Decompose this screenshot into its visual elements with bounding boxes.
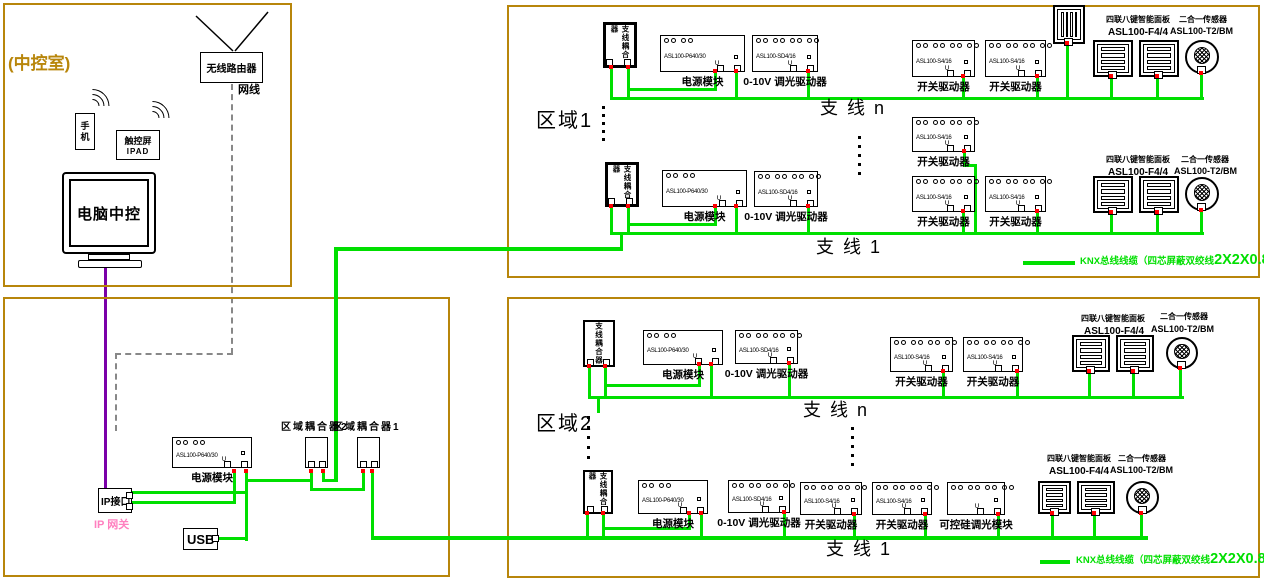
continuation-dots	[602, 130, 605, 133]
terminal-dot	[734, 69, 738, 73]
u-mark: ∪	[692, 351, 698, 360]
continuation-dots	[858, 145, 861, 148]
clamp-icon	[900, 485, 905, 490]
u-mark: ∪	[767, 350, 773, 359]
terminal-dot	[1035, 209, 1039, 213]
clamp-icon	[1008, 340, 1013, 345]
clamp-icon	[893, 485, 898, 490]
clamp-icon	[647, 333, 652, 338]
indicator	[1012, 355, 1016, 359]
clamp-icon	[957, 43, 962, 48]
clamp-icon	[773, 38, 778, 43]
indicator	[964, 195, 968, 199]
terminal-dot	[1087, 369, 1091, 373]
clamp-icon	[855, 485, 860, 490]
gw-power-module-label: 电源模块	[112, 470, 312, 485]
terminal-row	[739, 333, 807, 338]
clamp-icon	[671, 38, 676, 43]
model-text: ASL100-P640/30	[176, 453, 218, 459]
diagram-label: ASL100-T2/BM	[1151, 325, 1214, 335]
z1r1-switch-driver-2-label: 开关驱动器	[916, 79, 1116, 94]
knx-bus-wire	[218, 537, 248, 540]
clamp-icon	[968, 485, 973, 490]
continuation-dots	[851, 463, 854, 466]
clamp-icon	[935, 340, 940, 345]
diagram-label: 二合一传感器	[1118, 455, 1166, 464]
terminal-dot	[1199, 71, 1203, 75]
panel-keys	[1097, 180, 1129, 209]
terminal-dot	[321, 469, 325, 473]
terminal-dot	[232, 469, 236, 473]
indicator	[241, 451, 245, 455]
clamp-icon	[766, 483, 771, 488]
clamp-icon	[732, 483, 737, 488]
panel-key	[1066, 12, 1069, 37]
legend-text: KNX总线线缆（四芯屏蔽双绞线2X2X0.8）	[1080, 252, 1264, 268]
panel-key	[1147, 202, 1171, 206]
clamp-icon	[1023, 179, 1028, 184]
clamp-icon	[816, 174, 821, 179]
knx-bus-wire	[334, 247, 623, 251]
z1r2-switch-driver-2: ASL100-S4/16∪	[985, 176, 1046, 212]
terminal-dot	[713, 204, 717, 208]
diagram-label: ASL100-T2/BM	[1110, 466, 1173, 476]
knx-bus-wire	[1200, 209, 1203, 232]
terminal-dot	[697, 362, 701, 366]
clamp-icon	[974, 340, 979, 345]
clamp-icon	[975, 485, 980, 490]
model-text: ASL100-SD4/16	[732, 497, 771, 503]
sensor-lens-icon	[1194, 47, 1211, 64]
panel-key	[1124, 361, 1146, 365]
diagram-label: 四联八键智能面板	[1081, 315, 1145, 324]
panel-key	[1124, 342, 1146, 346]
panel-key	[1075, 12, 1078, 37]
terminal-dot	[713, 69, 717, 73]
continuation-dots	[602, 122, 605, 125]
terminal-dot	[601, 511, 605, 515]
clamp-icon	[957, 179, 962, 184]
clamp-icon	[916, 179, 921, 184]
panel-key	[1085, 499, 1107, 502]
diagram-label: 二合一传感器	[1181, 156, 1229, 165]
usb-interface-box: USB	[183, 528, 218, 550]
clamp-icon	[876, 485, 881, 490]
clamp-icon	[940, 43, 945, 48]
clamp-icon	[923, 43, 928, 48]
u-mark: ∪	[677, 500, 683, 509]
clamp-icon	[664, 38, 669, 43]
gw-power-module: ASL100-P640/30∪	[172, 437, 252, 468]
clamp-icon	[193, 440, 198, 445]
terminal-dot	[603, 364, 607, 368]
diagram-label: 支 线 n	[803, 401, 869, 421]
diagram-label: ASL100-T2/BM	[1174, 167, 1237, 177]
knx-bus-wire	[132, 491, 248, 494]
clamp-icon	[940, 120, 945, 125]
indicator	[787, 347, 791, 351]
z1r1-panel-top	[1053, 5, 1085, 44]
continuation-dots	[587, 456, 590, 459]
terminal	[126, 503, 133, 510]
clamp-icon	[654, 333, 659, 338]
clamp-icon	[782, 174, 787, 179]
clamp-icon	[950, 43, 955, 48]
clamp-icon	[1025, 340, 1030, 345]
indicator	[964, 135, 968, 139]
clamp-icon	[916, 43, 921, 48]
clamp-icon	[797, 38, 802, 43]
panel-key	[1080, 355, 1102, 359]
terminal-row	[804, 485, 872, 490]
clamp-icon	[1013, 179, 1018, 184]
clamp-icon	[814, 38, 819, 43]
clamp-icon	[773, 333, 778, 338]
clamp-icon	[797, 333, 802, 338]
panel-key	[1101, 202, 1125, 206]
clamp-icon	[1047, 179, 1052, 184]
terminal-row	[647, 333, 681, 338]
diagram-label: 支 线 1	[816, 238, 882, 258]
u-mark: ∪	[759, 499, 765, 508]
terminal-dot	[361, 469, 365, 473]
clamp-icon	[992, 485, 997, 490]
terminal	[212, 535, 219, 542]
indicator	[734, 55, 738, 59]
clamp-icon	[923, 120, 928, 125]
clamp-icon	[1030, 179, 1035, 184]
terminal-dot	[1139, 511, 1143, 515]
clamp-icon	[838, 485, 843, 490]
u-mark: ∪	[787, 193, 793, 202]
panel-key	[1147, 183, 1171, 187]
clamp-icon	[1013, 43, 1018, 48]
terminal-dot	[962, 149, 966, 153]
clamp-icon	[989, 43, 994, 48]
clamp-icon	[749, 483, 754, 488]
knx-bus-wire	[610, 97, 1204, 100]
clamp-icon	[845, 485, 850, 490]
terminal-dot	[1035, 74, 1039, 78]
panel-keys	[1120, 339, 1150, 368]
z1r2-panel-1	[1093, 176, 1133, 213]
model-text: ASL100-P640/30	[664, 54, 706, 60]
zone-coupler-2	[305, 437, 328, 468]
u-mark: ∪	[992, 358, 998, 367]
z1r2-power-module: ASL100-P640/30∪	[662, 170, 747, 207]
clamp-icon	[690, 173, 695, 178]
clamp-icon	[1006, 43, 1011, 48]
z1r2-switch-driver-1: ASL100-S4/16∪	[912, 176, 975, 212]
knx-bus-wire	[1140, 512, 1143, 536]
panel-key	[1101, 60, 1125, 64]
clamp-icon	[763, 333, 768, 338]
clamp-icon	[673, 173, 678, 178]
terminal-row	[876, 485, 944, 490]
z1r2-sensor	[1185, 177, 1219, 211]
clamp-icon	[804, 485, 809, 490]
panel-key	[1080, 348, 1102, 352]
clamp-icon	[183, 440, 188, 445]
diagram-label: 二合一传感器	[1160, 313, 1208, 322]
clamp-icon	[773, 483, 778, 488]
clamp-icon	[799, 174, 804, 179]
clamp-icon	[950, 179, 955, 184]
clamp-icon	[940, 179, 945, 184]
terminal-dot	[1155, 210, 1159, 214]
indicator	[994, 498, 998, 502]
terminal-row	[967, 340, 1035, 345]
clamp-icon	[945, 340, 950, 345]
control-room-frame	[3, 3, 292, 287]
z2r2-thyristor-dimmer: ∪	[947, 482, 1005, 515]
clamp-icon	[991, 340, 996, 345]
clamp-icon	[756, 333, 761, 338]
panel-key	[1101, 66, 1125, 70]
panel-key	[1101, 196, 1125, 200]
z1r1-power-module: ASL100-P640/30∪	[660, 35, 745, 72]
knx-bus-wire	[620, 232, 623, 248]
panel-keys	[1097, 44, 1129, 73]
panel-key	[1101, 53, 1125, 57]
model-text: ASL100-P640/30	[647, 348, 689, 354]
clamp-icon	[739, 483, 744, 488]
panel-key	[1147, 196, 1171, 200]
terminal-dot	[1155, 74, 1159, 78]
terminal-row	[758, 174, 826, 179]
terminal-dot	[609, 65, 613, 69]
terminal-dot	[699, 511, 703, 515]
terminal-row	[989, 43, 1057, 48]
continuation-dots	[858, 172, 861, 175]
z2r2-switch-driver-2: ASL100-S4/16∪	[872, 482, 932, 515]
panel-key	[1124, 348, 1146, 352]
clamp-icon	[790, 38, 795, 43]
terminal-row	[916, 120, 984, 125]
panel-key	[1046, 499, 1063, 502]
z2r1-panel-2	[1116, 335, 1154, 372]
terminal-dot	[852, 512, 856, 516]
terminal	[308, 461, 315, 468]
knx-bus-wire	[588, 396, 1184, 399]
terminal	[241, 461, 248, 468]
clamp-icon	[1040, 179, 1045, 184]
clamp-icon	[901, 340, 906, 345]
knx-bus-wire	[610, 232, 1204, 235]
diagram-label: ASL100-F4/4	[1084, 326, 1144, 337]
clamp-icon	[933, 179, 938, 184]
panel-key	[1147, 47, 1171, 51]
indicator	[779, 496, 783, 500]
terminal-dot	[1178, 366, 1182, 370]
panel-keys	[1143, 180, 1175, 209]
indicator	[807, 190, 811, 194]
terminal-dot	[961, 74, 965, 78]
clamp-icon	[974, 179, 979, 184]
clamp-icon	[739, 333, 744, 338]
indicator	[851, 498, 855, 502]
clamp-icon	[952, 340, 957, 345]
clamp-icon	[763, 38, 768, 43]
terminal	[964, 205, 971, 212]
clamp-icon	[933, 43, 938, 48]
clamp-icon	[671, 333, 676, 338]
u-mark: ∪	[944, 63, 950, 72]
panel-key	[1080, 361, 1102, 365]
diagram-label: ASL100-F4/4	[1108, 167, 1168, 178]
terminal-dot	[787, 361, 791, 365]
panel-key	[1101, 47, 1125, 51]
terminal-dot	[687, 511, 691, 515]
clamp-icon	[807, 38, 812, 43]
z2r1-power-module: ASL100-P640/30∪	[643, 330, 723, 365]
terminal-dot	[244, 469, 248, 473]
panel-key	[1147, 189, 1171, 193]
z1r1-branch-coupler: 支线耦合器	[603, 22, 637, 68]
u-mark: ∪	[787, 58, 793, 67]
panel-keys	[1143, 44, 1175, 73]
knx-system-diagram: (中控室) 无线路由器 网线 手机 触控屏 IPAD 电脑中控 ASL100-P…	[0, 0, 1264, 583]
terminal-dot	[626, 65, 630, 69]
u-mark: ∪	[1015, 63, 1021, 72]
z1r2-switch-driver-2-label: 开关驱动器	[916, 214, 1116, 229]
clamp-icon	[996, 43, 1001, 48]
z1r1-switch-driver-2: ASL100-S4/16∪	[985, 40, 1046, 77]
terminal-dot	[782, 510, 786, 514]
panel-key	[1046, 493, 1063, 496]
continuation-dots	[858, 136, 861, 139]
clamp-icon	[958, 485, 963, 490]
clamp-icon	[775, 174, 780, 179]
diagram-label: 区域2	[536, 413, 593, 435]
diagram-label: 区域耦合器1	[333, 422, 401, 433]
panel-key	[1085, 488, 1107, 491]
u-mark: ∪	[944, 198, 950, 207]
terminal-row	[989, 179, 1057, 184]
knx-bus-wire	[597, 399, 600, 413]
clamp-icon	[967, 179, 972, 184]
continuation-dots	[851, 436, 854, 439]
terminal-dot	[1065, 41, 1069, 45]
panel-keys	[1081, 485, 1111, 510]
clamp-icon	[862, 485, 867, 490]
clamp-icon	[1002, 485, 1007, 490]
panel-key	[1085, 504, 1107, 507]
knx-bus-wire	[371, 536, 1148, 540]
panel-keys	[1057, 9, 1081, 40]
knx-bus-wire	[334, 248, 338, 482]
continuation-dots	[851, 454, 854, 457]
panel-key	[1101, 183, 1125, 187]
clamp-icon	[1030, 43, 1035, 48]
terminal-dot	[585, 511, 589, 515]
clamp-icon	[967, 340, 972, 345]
continuation-dots	[602, 114, 605, 117]
z1-mid-switch-driver-label: 开关驱动器	[844, 154, 1044, 169]
z2r2-panel-1	[1038, 481, 1071, 514]
sensor-lens-icon	[1194, 184, 1211, 201]
terminal-dot	[1109, 210, 1113, 214]
indicator	[712, 348, 716, 352]
u-mark: ∪	[1015, 198, 1021, 207]
z1r1-dimmer-driver: ASL100-SD4/16∪	[752, 35, 818, 72]
clamp-icon	[950, 120, 955, 125]
panel-keys	[1042, 485, 1067, 510]
terminal-dot	[961, 209, 965, 213]
terminal-row	[176, 440, 210, 445]
panel-key	[1080, 342, 1102, 346]
clamp-icon	[746, 333, 751, 338]
clamp-icon	[1047, 43, 1052, 48]
diagram-label: IP 网关	[94, 519, 129, 531]
clamp-icon	[683, 173, 688, 178]
terminal	[712, 358, 719, 365]
clamp-icon	[984, 340, 989, 345]
clamp-icon	[780, 38, 785, 43]
knx-bus-wire	[606, 384, 701, 387]
clamp-icon	[1023, 43, 1028, 48]
terminal	[126, 492, 133, 499]
clamp-icon	[894, 340, 899, 345]
terminal-dot	[996, 512, 1000, 516]
clamp-icon	[688, 38, 693, 43]
legend-text: KNX总线线缆（四芯屏蔽双绞线2X2X0.8）	[1076, 551, 1264, 567]
panel-key	[1147, 66, 1171, 70]
continuation-dots	[587, 436, 590, 439]
continuation-dots	[851, 427, 854, 430]
terminal-dot	[587, 364, 591, 368]
clamp-icon	[927, 485, 932, 490]
clamp-icon	[790, 483, 795, 488]
z2r1-switch-driver-2: ASL100-S4/16∪	[963, 337, 1023, 372]
legend-wire-sample	[1040, 560, 1070, 564]
clamp-icon	[780, 333, 785, 338]
u-mark: ∪	[714, 58, 720, 67]
indicator	[697, 497, 701, 501]
z2r1-switch-driver-1: ASL100-S4/16∪	[890, 337, 953, 372]
panel-key	[1147, 53, 1171, 57]
terminal	[319, 461, 326, 468]
terminal-row	[756, 38, 824, 43]
sensor-lens-icon	[1134, 488, 1150, 504]
continuation-dots	[851, 445, 854, 448]
clamp-icon	[911, 340, 916, 345]
clamp-icon	[821, 485, 826, 490]
clamp-icon	[974, 43, 979, 48]
z1-mid-switch-driver: ASL100-S4/16∪	[912, 117, 975, 152]
z1r1-panel-2	[1139, 40, 1179, 77]
clamp-icon	[1018, 340, 1023, 345]
ip-interface-box: IP接口	[98, 488, 132, 513]
terminal-dot	[1015, 369, 1019, 373]
z2r2-sensor	[1126, 481, 1159, 514]
terminal-row	[642, 483, 676, 488]
diagram-label: 支 线 n	[820, 99, 886, 119]
clamp-icon	[1040, 43, 1045, 48]
panel-key	[1085, 493, 1107, 496]
clamp-icon	[792, 174, 797, 179]
clamp-icon	[967, 120, 972, 125]
indicator	[807, 55, 811, 59]
clamp-icon	[176, 440, 181, 445]
terminal-dot	[734, 204, 738, 208]
clamp-icon	[934, 485, 939, 490]
terminal	[964, 70, 971, 77]
knx-bus-wire	[310, 488, 365, 491]
z1r2-dimmer-driver: ASL100-SD4/16∪	[754, 171, 818, 207]
continuation-dots	[602, 138, 605, 141]
indicator	[942, 355, 946, 359]
